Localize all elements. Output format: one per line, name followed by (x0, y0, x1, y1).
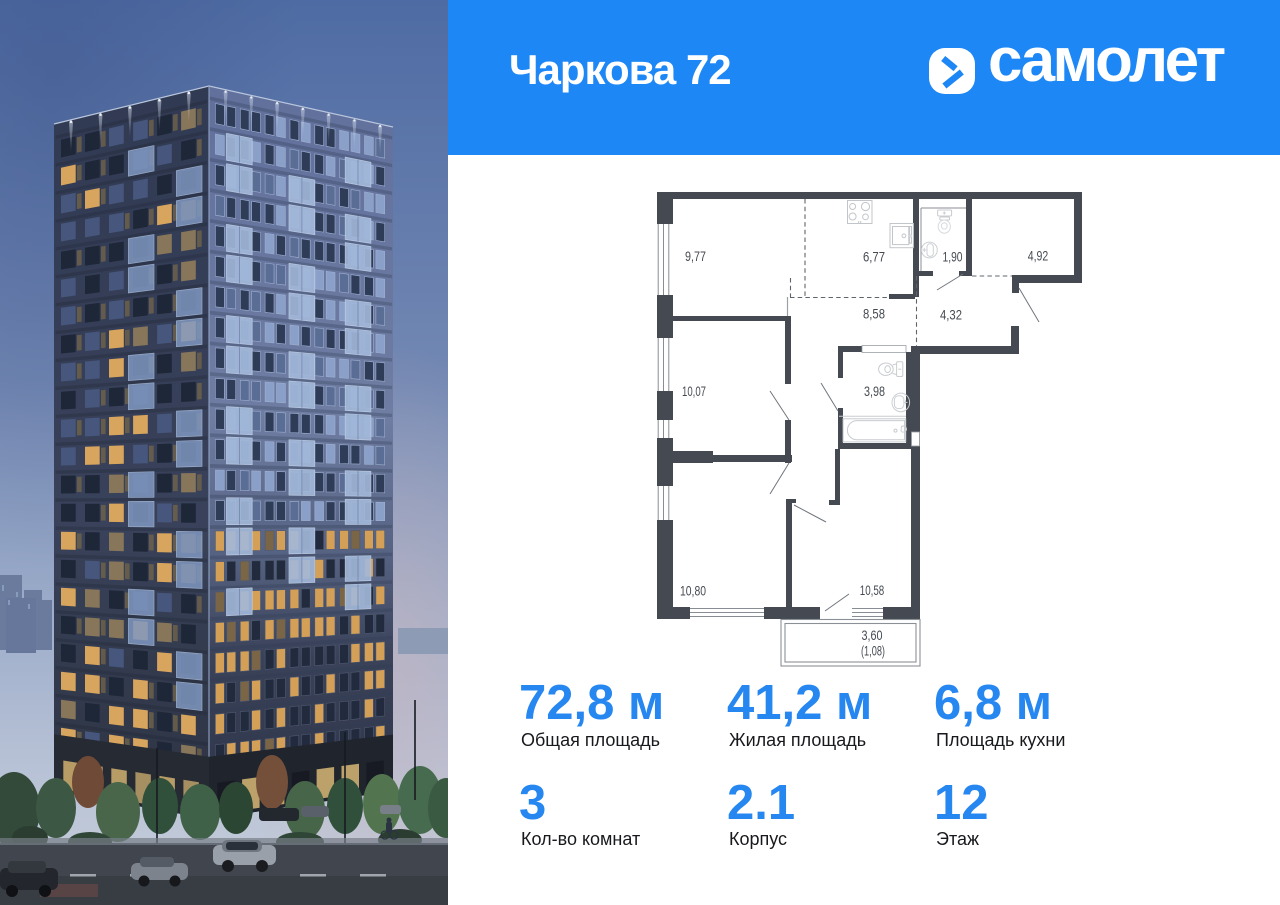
svg-text:(1,08): (1,08) (861, 643, 885, 659)
svg-text:10,80: 10,80 (680, 583, 706, 599)
svg-text:9,77: 9,77 (685, 248, 706, 264)
svg-text:1,90: 1,90 (943, 249, 963, 265)
svg-text:10,07: 10,07 (682, 383, 706, 399)
svg-text:4,92: 4,92 (1028, 248, 1049, 264)
svg-text:10,58: 10,58 (860, 582, 885, 598)
svg-text:6,77: 6,77 (863, 249, 885, 265)
svg-text:4,32: 4,32 (940, 307, 962, 323)
svg-text:8,58: 8,58 (863, 306, 885, 322)
svg-text:3,60: 3,60 (862, 627, 883, 643)
svg-text:3,98: 3,98 (864, 383, 885, 399)
